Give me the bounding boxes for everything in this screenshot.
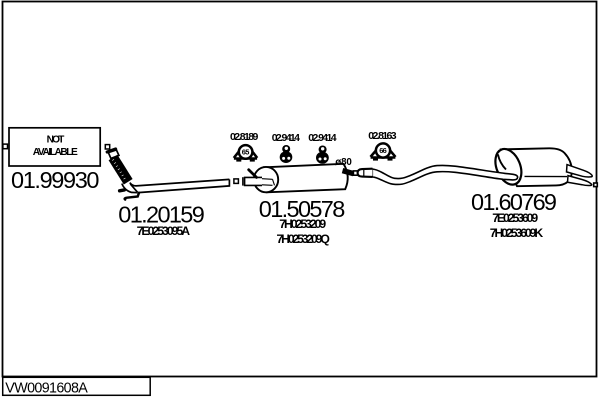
- svg-text:02.8189: 02.8189: [230, 131, 258, 143]
- svg-text:02.8163: 02.8163: [368, 130, 396, 142]
- svg-text:ø80: ø80: [335, 157, 352, 168]
- svg-text:7H0253209: 7H0253209: [279, 217, 326, 231]
- svg-text:01.99930: 01.99930: [11, 167, 100, 193]
- svg-text:7H0253209Q: 7H0253209Q: [277, 232, 330, 246]
- svg-text:7H0253609K: 7H0253609K: [490, 226, 544, 240]
- svg-text:7E0253609: 7E0253609: [492, 211, 538, 225]
- svg-text:02.9414: 02.9414: [308, 132, 336, 144]
- svg-text:65: 65: [242, 148, 250, 157]
- svg-text:02.9414: 02.9414: [272, 132, 300, 144]
- svg-text:7E0253095A: 7E0253095A: [137, 224, 191, 238]
- svg-text:66: 66: [379, 146, 387, 155]
- svg-text:NOT: NOT: [47, 135, 66, 146]
- svg-text:VW0091608A: VW0091608A: [5, 380, 88, 396]
- svg-text:AVAILABLE: AVAILABLE: [33, 147, 78, 158]
